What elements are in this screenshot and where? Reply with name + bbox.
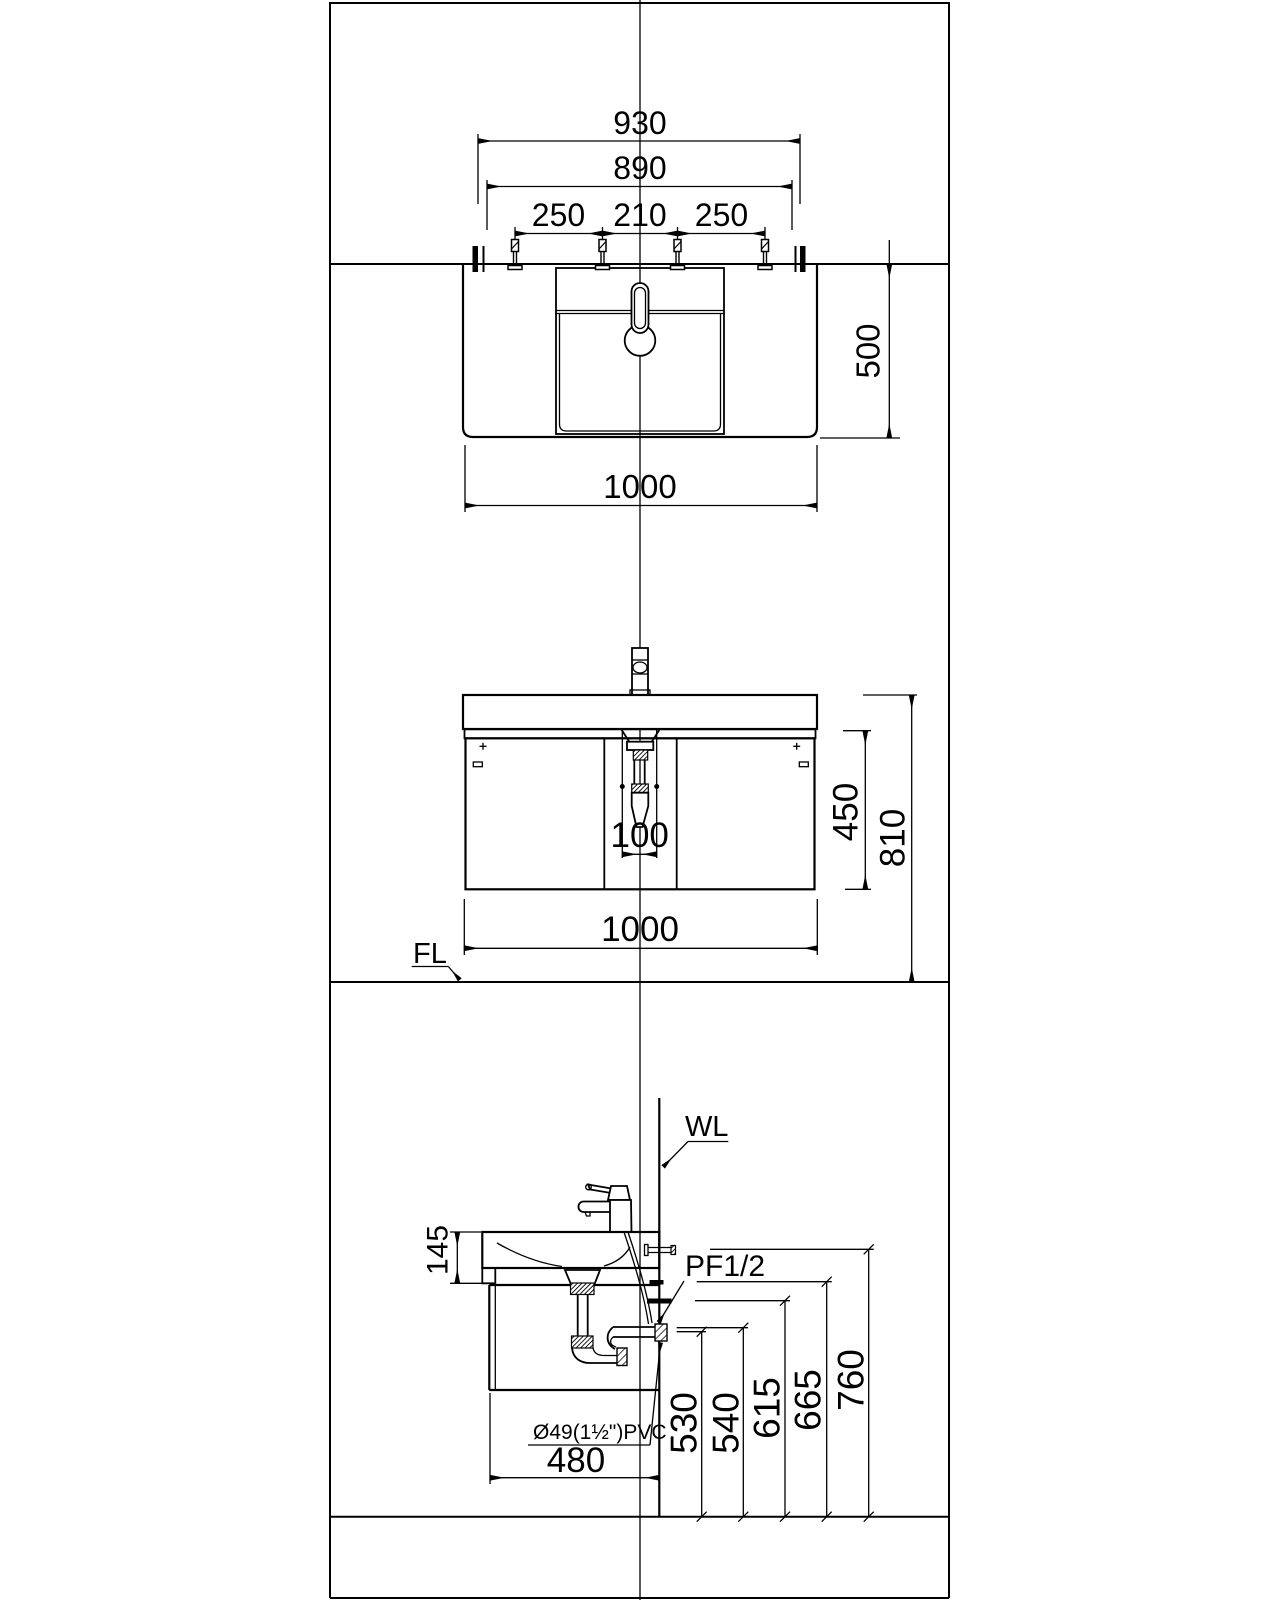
- dim-615-label: 615: [747, 1377, 788, 1439]
- technical-drawing: 930 890 250 210 250 500 1000: [0, 0, 1280, 1600]
- dim-500-label: 500: [850, 323, 887, 378]
- dim-890-label: 890: [613, 150, 666, 186]
- door-handle-left: [473, 762, 482, 767]
- mounting-bolt-icon: [671, 240, 685, 270]
- dim-760-label: 760: [831, 1349, 872, 1411]
- wall-flange: [655, 1324, 667, 1341]
- floor-level-label: FL: [413, 938, 447, 970]
- dim-1000-front-label: 1000: [601, 910, 679, 949]
- dim-665-label: 665: [788, 1369, 829, 1431]
- pf12-label: PF1/2: [685, 1250, 765, 1283]
- wall-stub-lower: [647, 1299, 672, 1304]
- dim-540-label: 540: [706, 1392, 747, 1454]
- plan-view: 930 890 250 210 250 500 1000: [463, 105, 900, 512]
- mounting-bolt-icon: [758, 240, 772, 270]
- mounting-bolt-icon: [508, 240, 522, 270]
- counter-front: [463, 695, 817, 729]
- dim-930-label: 930: [613, 105, 666, 141]
- waste-pipe-callout: Ø49(1½")PVC: [528, 1343, 667, 1445]
- faucet-plan-icon: [625, 283, 656, 356]
- drawing-page: 930 890 250 210 250 500 1000: [0, 0, 1280, 1600]
- dim-810-label: 810: [874, 809, 913, 867]
- dim-250-left-label: 250: [532, 197, 585, 233]
- door-handle-right: [799, 762, 808, 767]
- wall-line-label: WL: [685, 1111, 729, 1143]
- dim-145-label: 145: [422, 1225, 455, 1275]
- bowl-curve: [497, 1243, 562, 1267]
- dim-450-label: 450: [827, 783, 866, 841]
- wall-line-callout: WL: [664, 1111, 729, 1167]
- plan-dimensions: 930 890 250 210 250 500 1000: [465, 105, 900, 512]
- height-dim-530: 530: [664, 1327, 707, 1522]
- dim-1000-plan-label: 1000: [603, 468, 676, 505]
- dim-100-label: 100: [610, 816, 668, 855]
- dim-210-label: 210: [613, 197, 666, 233]
- side-view: WL: [422, 1098, 874, 1522]
- front-view: 100 450 810 1000 FL: [412, 648, 917, 982]
- dim-480-label: 480: [547, 1441, 605, 1480]
- dim-250-right-label: 250: [695, 197, 748, 233]
- supply-callout: PF1/2: [659, 1250, 765, 1322]
- mounting-bolt-icon: [596, 240, 610, 270]
- basin-apron: [482, 1268, 495, 1283]
- faucet-side-icon: [579, 1184, 653, 1324]
- dim-530-label: 530: [664, 1392, 705, 1454]
- wall-stub-upper: [650, 1280, 664, 1285]
- faucet-front-icon: [630, 648, 650, 695]
